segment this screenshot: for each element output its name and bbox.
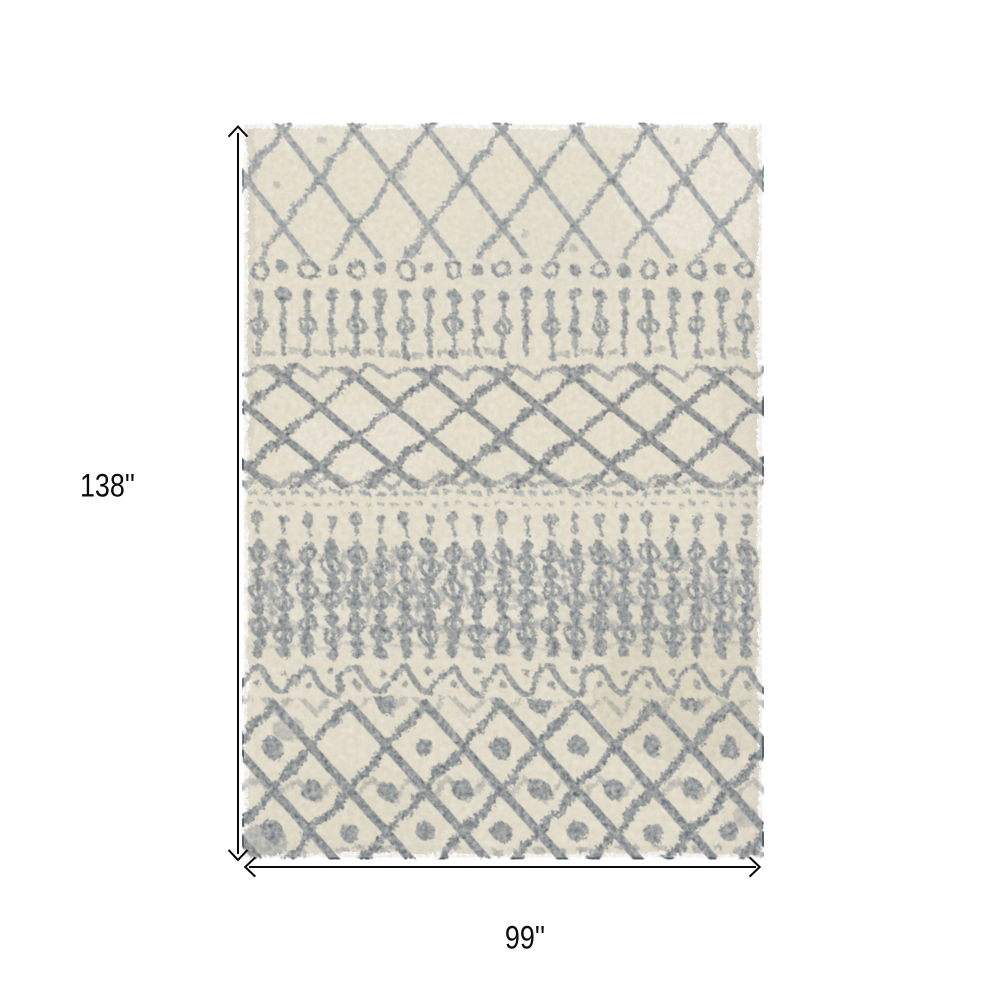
svg-text:138'': 138''	[80, 468, 135, 504]
svg-text:99'': 99''	[505, 920, 545, 956]
